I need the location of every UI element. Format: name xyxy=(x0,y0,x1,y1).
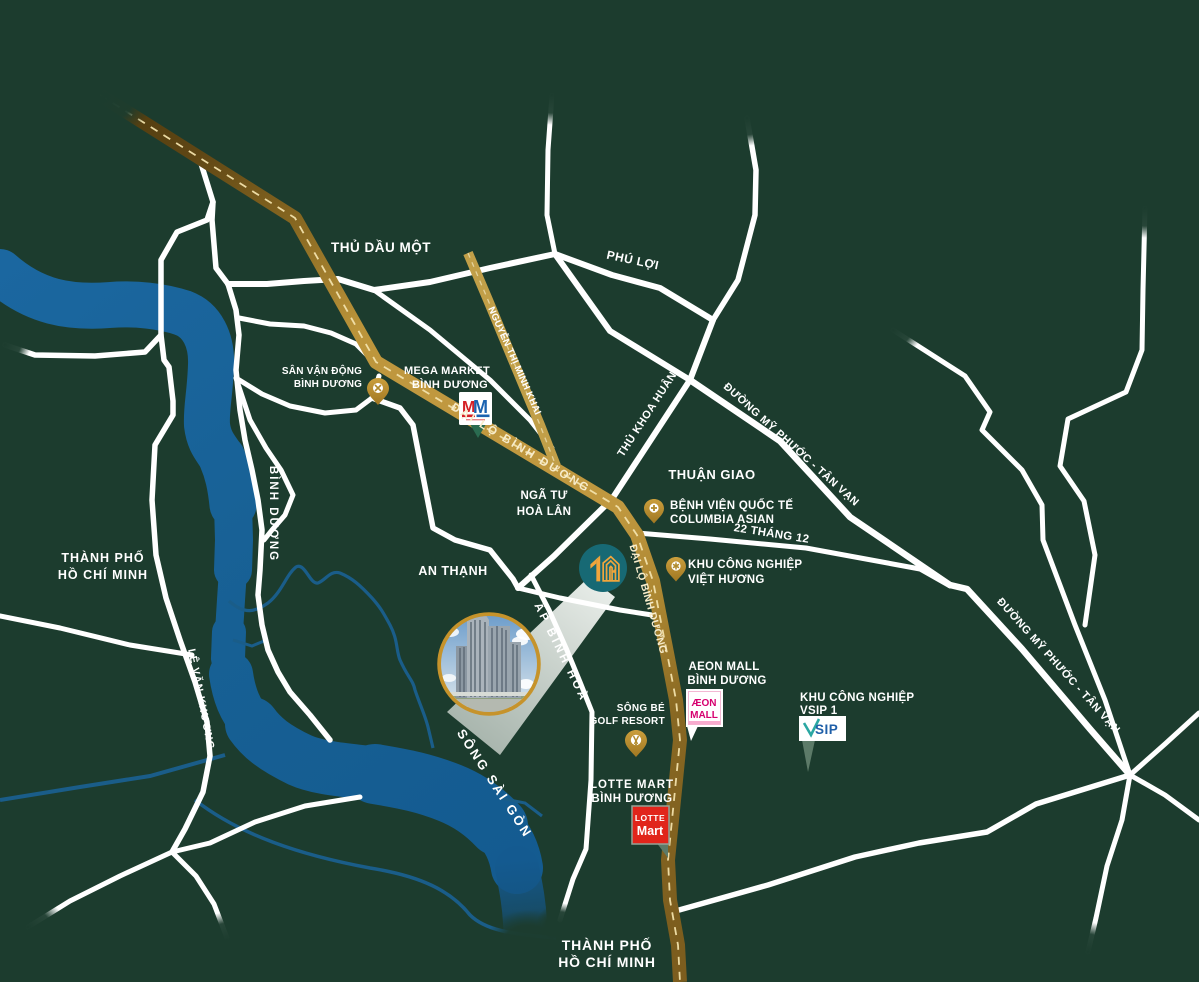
svg-text:VSIP 1: VSIP 1 xyxy=(800,705,838,717)
svg-text:BÌNH DƯƠNG: BÌNH DƯƠNG xyxy=(267,466,280,562)
svg-text:COLUMBIA ASIAN: COLUMBIA ASIAN xyxy=(670,514,774,526)
svg-text:KHU CÔNG NGHIỆP: KHU CÔNG NGHIỆP xyxy=(800,691,914,704)
svg-text:HOÀ LÂN: HOÀ LÂN xyxy=(517,505,572,518)
svg-text:VIỆT HƯƠNG: VIỆT HƯƠNG xyxy=(688,573,765,586)
svg-text:LOTTE: LOTTE xyxy=(635,813,665,823)
svg-text:BÌNH DƯƠNG: BÌNH DƯƠNG xyxy=(294,377,362,390)
svg-text:ÆON: ÆON xyxy=(692,698,717,709)
svg-text:SÂN VẬN ĐỘNG: SÂN VẬN ĐỘNG xyxy=(282,364,362,377)
svg-text:MALL: MALL xyxy=(690,710,718,721)
svg-text:HỒ CHÍ MINH: HỒ CHÍ MINH xyxy=(58,567,148,582)
svg-text:THÀNH PHỐ: THÀNH PHỐ xyxy=(562,936,652,953)
svg-text:SIP: SIP xyxy=(815,722,838,737)
svg-text:BÌNH DƯƠNG: BÌNH DƯƠNG xyxy=(687,674,766,687)
svg-text:AN THẠNH: AN THẠNH xyxy=(418,564,487,578)
svg-text:SÔNG BÉ: SÔNG BÉ xyxy=(617,701,665,714)
svg-text:THỦ DẦU MỘT: THỦ DẦU MỘT xyxy=(331,240,431,255)
svg-text:GOLF RESORT: GOLF RESORT xyxy=(589,716,665,727)
svg-text:BÌNH DƯƠNG: BÌNH DƯƠNG xyxy=(591,792,672,805)
svg-text:BÌNH DƯƠNG: BÌNH DƯƠNG xyxy=(412,378,488,391)
svg-text:THÀNH PHỐ: THÀNH PHỐ xyxy=(61,550,144,565)
svg-text:LOTTE MART: LOTTE MART xyxy=(590,779,674,791)
svg-text:THUẬN GIAO: THUẬN GIAO xyxy=(668,467,755,482)
svg-text:Mart: Mart xyxy=(637,824,664,838)
svg-text:HỒ CHÍ MINH: HỒ CHÍ MINH xyxy=(558,953,655,970)
svg-text:BỆNH VIỆN QUỐC TẾ: BỆNH VIỆN QUỐC TẾ xyxy=(670,498,793,512)
svg-text:AEON MALL: AEON MALL xyxy=(688,661,759,673)
svg-text:KHU CÔNG NGHIỆP: KHU CÔNG NGHIỆP xyxy=(688,558,802,571)
svg-text:MEGA MARKET: MEGA MARKET xyxy=(404,365,490,377)
svg-text:NGÃ TƯ: NGÃ TƯ xyxy=(520,489,567,502)
